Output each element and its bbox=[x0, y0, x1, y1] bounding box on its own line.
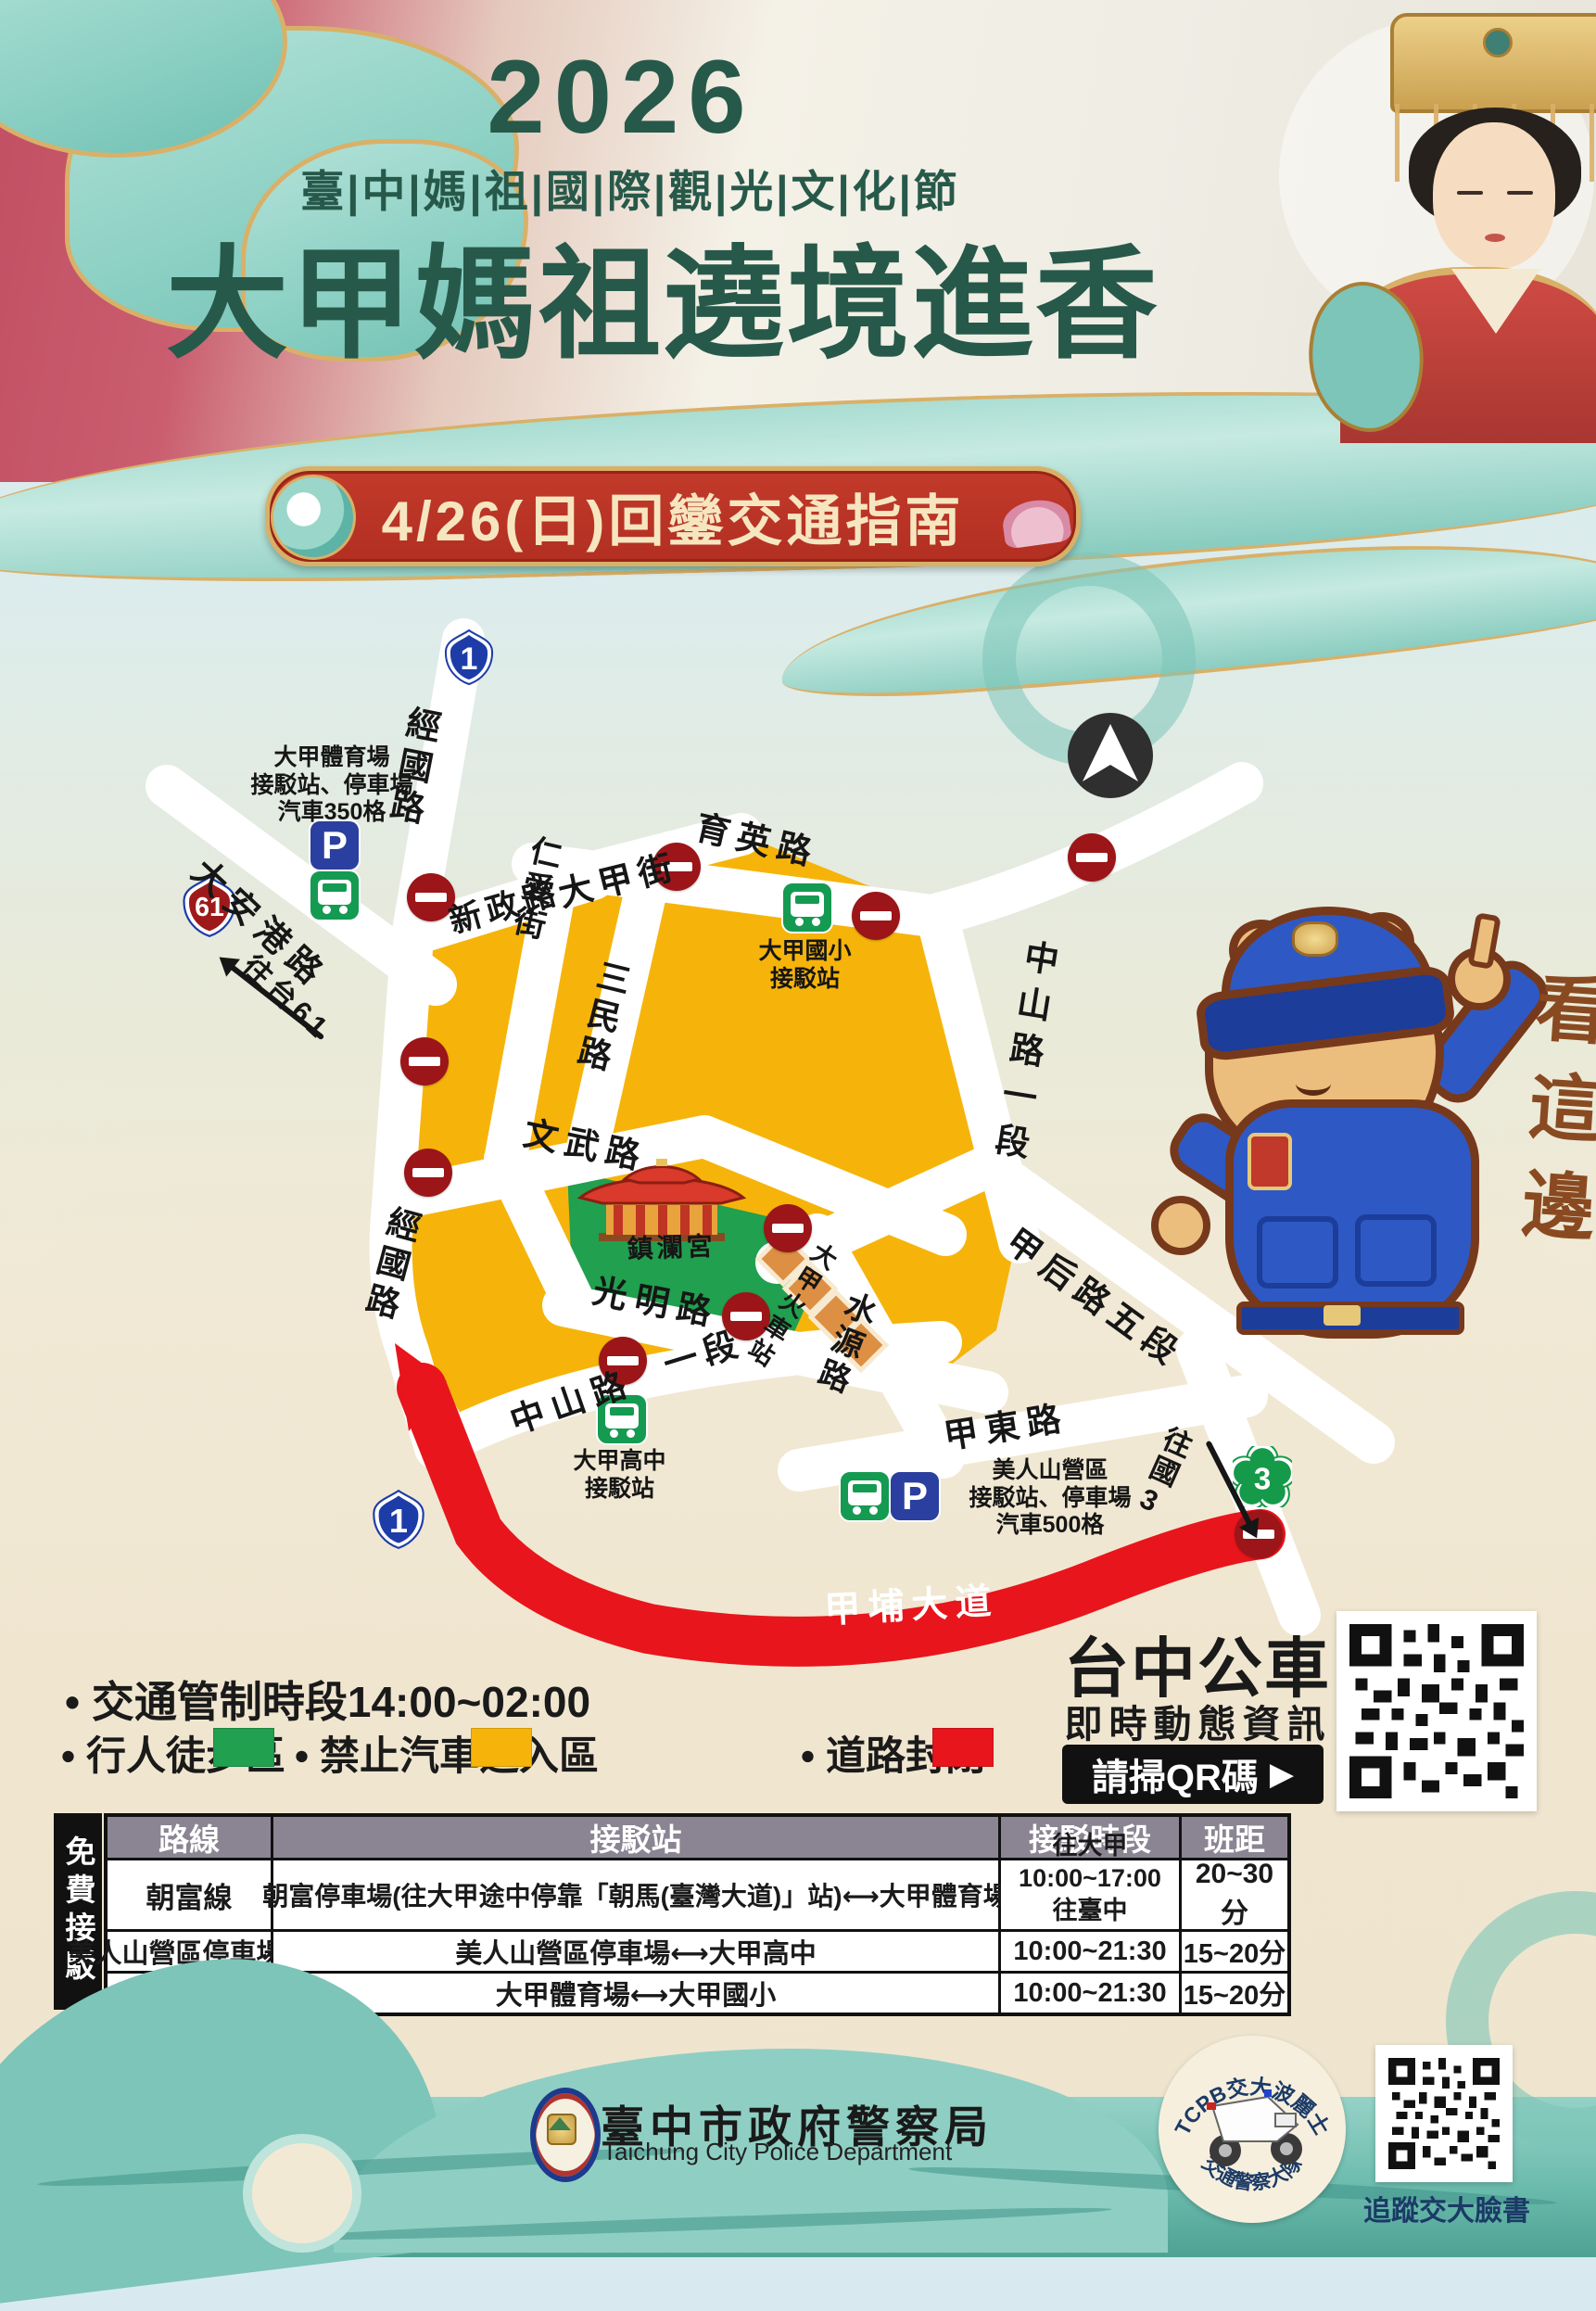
facebook-qr-label: 追蹤交大臉書 bbox=[1359, 2188, 1535, 2228]
highway-1-shield: 1 bbox=[443, 629, 495, 691]
play-arrow-icon: ▶ bbox=[1270, 1756, 1294, 1793]
table-row3-interval: 15~20分 bbox=[1182, 1974, 1287, 2013]
svg-text:1: 1 bbox=[389, 1502, 408, 1540]
road-label-jiapu: 甲埔大道 bbox=[823, 1572, 1000, 1633]
svg-text:1: 1 bbox=[461, 641, 478, 677]
legend-pedestrian-swatch bbox=[213, 1728, 274, 1767]
legend-closed-swatch bbox=[932, 1728, 994, 1767]
scan-qr-cta: 請掃QR碼 ▶ bbox=[1062, 1745, 1324, 1804]
tcpb-logo: TCPB交大波麗士 交通警察大隊 bbox=[1159, 2036, 1346, 2223]
no-entry-icon bbox=[400, 1037, 449, 1086]
no-entry-icon bbox=[1068, 833, 1116, 882]
legend-no-car-label: • 禁止汽車進入區 bbox=[295, 1724, 599, 1782]
svg-text:3: 3 bbox=[1254, 1461, 1271, 1495]
scan-qr-text: 請掃QR碼 bbox=[1092, 1747, 1259, 1801]
table-row2-interval: 15~20分 bbox=[1182, 1932, 1287, 1971]
table-row3-station: 大甲體育場⟷大甲國小 bbox=[273, 1974, 998, 2013]
bus-stop-icon bbox=[781, 882, 833, 933]
facebook-qr-code bbox=[1375, 2045, 1513, 2182]
table-row1-station: 朝富停車場(往大甲途中停靠「朝馬(臺灣大道)」站)⟷大甲體育場 bbox=[273, 1860, 998, 1929]
table-row2-station: 美人山營區停車場⟷大甲高中 bbox=[273, 1932, 998, 1971]
police-badge bbox=[530, 2088, 601, 2182]
north-arrow-icon bbox=[1083, 724, 1138, 781]
table-header-route: 路線 bbox=[108, 1817, 271, 1858]
capybara-pocket-right bbox=[1355, 1214, 1437, 1287]
bus-info-subtitle: 即時動態資訊 bbox=[1057, 1693, 1339, 1748]
no-entry-icon bbox=[852, 892, 900, 940]
highway-1-shield-south: 1 bbox=[371, 1489, 426, 1555]
wave-foam bbox=[243, 2134, 361, 2253]
capybara-buckle bbox=[1324, 1305, 1361, 1326]
table-header-station: 接駁站 bbox=[273, 1817, 998, 1858]
banner-title: 4/26(日)回鑾交通指南 bbox=[382, 476, 965, 557]
bus-qr-code bbox=[1336, 1611, 1537, 1811]
capybara-mouth bbox=[1296, 1072, 1331, 1096]
table-row1-time: 往大甲10:00~17:00往臺中13:00~22:00 bbox=[1001, 1860, 1179, 1929]
mazu-illustration bbox=[1251, 0, 1596, 436]
poster-year: 2026 bbox=[297, 37, 945, 157]
banner: 4/26(日)回鑾交通指南 bbox=[265, 466, 1081, 566]
north-compass bbox=[1068, 713, 1153, 798]
capybara-mascot bbox=[1140, 890, 1539, 1372]
table-row3-time: 10:00~21:30 bbox=[1001, 1974, 1179, 2013]
banner-wave-icon bbox=[271, 475, 356, 560]
police-badge-mountain bbox=[549, 2117, 571, 2130]
parking-icon: P bbox=[309, 819, 361, 871]
capybara-cap-badge-icon bbox=[1292, 921, 1338, 957]
legend-no-car-swatch bbox=[471, 1728, 532, 1767]
table-row1-route: 朝富線 bbox=[108, 1860, 271, 1929]
meirenshan-stop-label: 美人山營區接駁站、停車場汽車500格 bbox=[944, 1457, 1157, 1540]
mazu-lips bbox=[1485, 234, 1505, 242]
capybara-paw bbox=[1151, 1196, 1210, 1255]
elementary-stop-label: 大甲國小接駁站 bbox=[738, 938, 872, 993]
legend-control-time: • 交通管制時段14:00~02:00 bbox=[65, 1669, 590, 1730]
table-row1-interval: 20~30分 bbox=[1182, 1860, 1287, 1929]
mazu-eye-right bbox=[1507, 191, 1533, 195]
capybara-chest-patch bbox=[1248, 1133, 1292, 1190]
mazu-face bbox=[1433, 122, 1555, 269]
main-title: 大甲媽祖遶境進香 bbox=[102, 206, 1223, 383]
table-row2-time: 10:00~21:30 bbox=[1001, 1932, 1179, 1971]
no-entry-icon bbox=[764, 1204, 812, 1252]
mazu-eye-left bbox=[1457, 191, 1483, 195]
org-name-en: Taichung City Police Department bbox=[602, 2138, 952, 2166]
mazu-crown-gem bbox=[1483, 28, 1513, 57]
table-header-interval: 班距 bbox=[1182, 1817, 1287, 1858]
highschool-stop-label: 大甲高中接駁站 bbox=[552, 1448, 687, 1503]
parking-icon: P bbox=[889, 1470, 941, 1522]
free-shuttle-side-label: 免費接駁 bbox=[54, 1813, 102, 2010]
bus-stop-icon bbox=[309, 870, 361, 921]
temple-label: 鎮瀾宮 bbox=[627, 1226, 716, 1266]
bus-stop-icon bbox=[839, 1470, 891, 1522]
capybara-pocket-left bbox=[1257, 1216, 1338, 1289]
no-entry-icon bbox=[404, 1149, 452, 1197]
